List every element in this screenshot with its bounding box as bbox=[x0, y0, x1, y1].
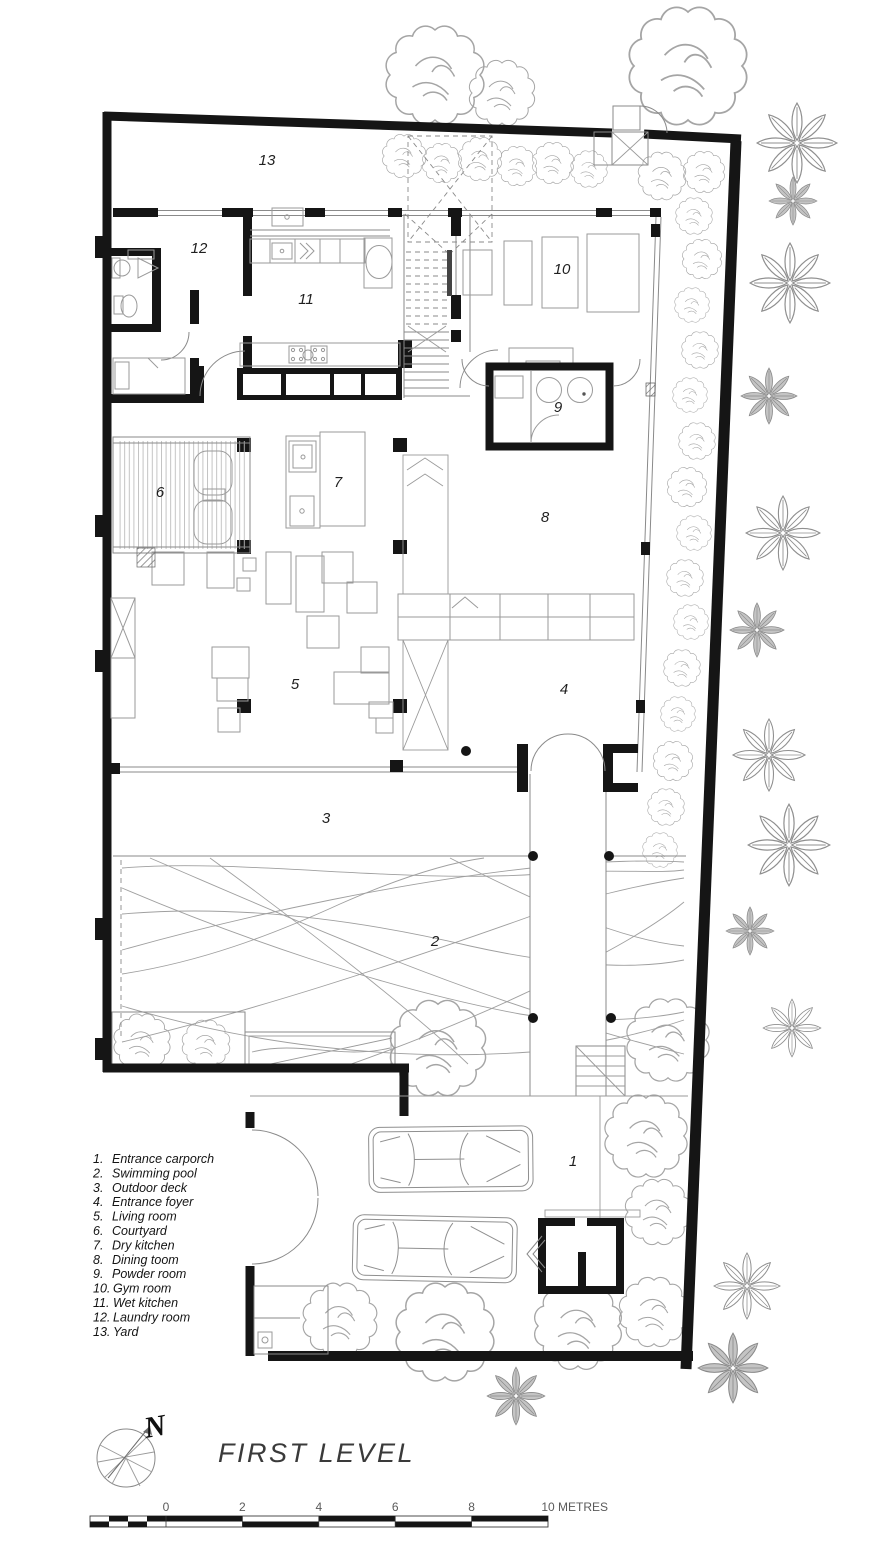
plan-title: FIRST LEVEL bbox=[218, 1438, 415, 1468]
legend-item-10: Gym room bbox=[113, 1282, 171, 1296]
legend-num-6: 6. bbox=[93, 1224, 103, 1238]
legend-item-11: Wet kitchen bbox=[113, 1296, 178, 1310]
room-label-12: 12 bbox=[191, 240, 208, 257]
room-label-2: 2 bbox=[430, 933, 440, 950]
room-label-13: 13 bbox=[259, 152, 276, 169]
room-label-6: 6 bbox=[156, 484, 165, 501]
bath-fixtures bbox=[112, 250, 185, 394]
legend-num-8: 8. bbox=[93, 1253, 103, 1267]
legend-item-4: Entrance foyer bbox=[112, 1195, 194, 1209]
dining-bench-and-pond bbox=[398, 455, 634, 750]
staircase bbox=[404, 136, 492, 398]
scale-tick-4: 4 bbox=[315, 1500, 322, 1514]
room-label-5: 5 bbox=[291, 676, 300, 693]
legend-num-7: 7. bbox=[93, 1238, 103, 1252]
scale-tick-0: 0 bbox=[163, 1500, 170, 1514]
legend-item-7: Dry kitchen bbox=[112, 1238, 175, 1252]
room-label-11: 11 bbox=[298, 291, 314, 308]
room-label-10: 10 bbox=[554, 261, 571, 278]
legend-item-1: Entrance carporch bbox=[112, 1152, 214, 1166]
scale-tick-2: 2 bbox=[239, 1500, 246, 1514]
gym-and-powder-room bbox=[462, 234, 640, 447]
legend-item-2: Swimming pool bbox=[112, 1166, 198, 1180]
legend-item-12: Laundry room bbox=[113, 1310, 190, 1324]
wet-kitchen-fittings bbox=[240, 208, 400, 366]
room-label-9: 9 bbox=[554, 399, 563, 416]
scale-unit: METRES bbox=[558, 1500, 608, 1514]
car-2 bbox=[352, 1215, 517, 1283]
legend-num-9: 9. bbox=[93, 1267, 103, 1281]
scale-tick-10: 10 bbox=[541, 1500, 555, 1514]
room-label-1: 1 bbox=[569, 1153, 577, 1170]
legend-item-13: Yard bbox=[113, 1325, 140, 1339]
carport bbox=[250, 1096, 688, 1354]
legend-num-11: 11. bbox=[93, 1296, 109, 1310]
legend-num-5: 5. bbox=[93, 1210, 103, 1224]
legend-num-2: 2. bbox=[92, 1166, 103, 1180]
legend-num-10: 10. bbox=[93, 1282, 110, 1296]
room-label-3: 3 bbox=[322, 810, 331, 827]
room-label-4: 4 bbox=[560, 681, 568, 698]
legend-num-13: 13. bbox=[93, 1325, 110, 1339]
legend-num-3: 3. bbox=[93, 1181, 103, 1195]
legend-item-5: Living room bbox=[112, 1210, 177, 1224]
scale-tick-8: 8 bbox=[468, 1500, 475, 1514]
room-label-7: 7 bbox=[334, 474, 343, 491]
legend-item-6: Courtyard bbox=[112, 1224, 168, 1238]
scale-bar: 0 2 4 6 8 10 METRES bbox=[90, 1500, 608, 1527]
legend: 1.Entrance carporch 2.Swimming pool 3.Ou… bbox=[92, 1152, 214, 1339]
legend-num-4: 4. bbox=[93, 1195, 103, 1209]
north-arrow: N bbox=[97, 1408, 170, 1487]
car-1 bbox=[369, 1126, 534, 1193]
legend-item-8: Dining toom bbox=[112, 1253, 179, 1267]
first-level-floor-plan: 1 2 3 4 5 6 7 8 9 10 11 12 13 1.Entrance… bbox=[0, 0, 878, 1552]
legend-num-1: 1. bbox=[93, 1152, 103, 1166]
floor-plan-page: 1 2 3 4 5 6 7 8 9 10 11 12 13 1.Entrance… bbox=[0, 0, 878, 1552]
scale-tick-6: 6 bbox=[392, 1500, 399, 1514]
living-room-furniture bbox=[111, 548, 393, 733]
legend-num-12: 12. bbox=[93, 1310, 110, 1324]
legend-item-9: Powder room bbox=[112, 1267, 186, 1281]
room-label-8: 8 bbox=[541, 509, 550, 526]
courtyard-and-dry-kitchen bbox=[113, 432, 365, 553]
legend-item-3: Outdoor deck bbox=[112, 1181, 188, 1195]
